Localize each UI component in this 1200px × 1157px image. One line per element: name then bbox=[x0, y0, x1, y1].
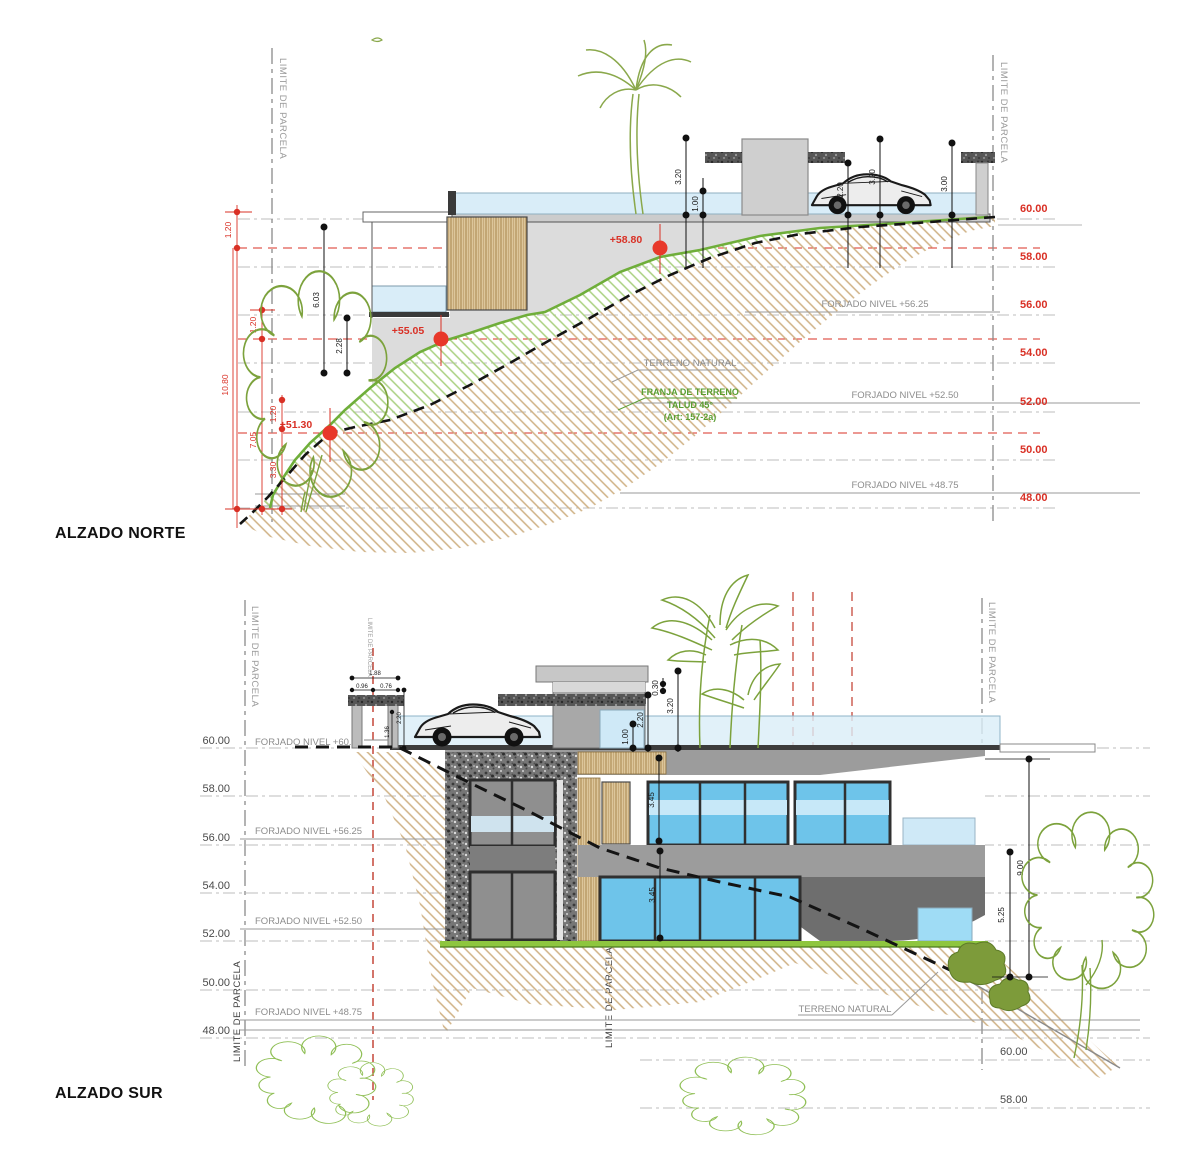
north-left-parcel-label: LIMITE DE PARCELA bbox=[277, 58, 288, 159]
south-window-upper-right-band bbox=[796, 800, 889, 815]
north-gate-post bbox=[976, 163, 988, 215]
dim-320b: 3.20 bbox=[868, 169, 877, 185]
south-terrain-hatch-main bbox=[445, 947, 1118, 1078]
south-wood-band bbox=[578, 752, 666, 774]
north-deck-slab bbox=[452, 214, 990, 222]
gate-dim-096: 0.96 bbox=[356, 684, 368, 690]
south-level-50: 50.00 bbox=[202, 977, 230, 989]
north-glass-end-cap bbox=[448, 191, 456, 215]
south-terreno-natural-label: TERRENO NATURAL bbox=[799, 1004, 892, 1015]
gate-dim-188: 1.88 bbox=[369, 671, 381, 677]
south-bushes-outline bbox=[256, 1036, 805, 1135]
dim-100s: 1.00 bbox=[621, 729, 630, 745]
north-forjado-5250-label: FORJADO NIVEL +52.50 bbox=[851, 390, 958, 401]
gate-dim-220: 2.20 bbox=[397, 712, 403, 724]
north-forjado-4875-label: FORJADO NIVEL +48.75 bbox=[851, 480, 958, 491]
south-gate: 1.88 0.96 0.76 2.20 1.36 bbox=[348, 671, 406, 750]
south-level-54: 54.00 bbox=[202, 880, 230, 892]
north-level-56: 56.00 bbox=[1020, 299, 1048, 311]
south-spandrel bbox=[470, 846, 555, 872]
north-lower-glass bbox=[372, 286, 446, 312]
dim-1080: 10.80 bbox=[220, 374, 230, 396]
dim-220s: 2.20 bbox=[636, 712, 645, 728]
north-title: ALZADO NORTE bbox=[55, 525, 186, 542]
south-gate-post-left bbox=[352, 705, 362, 748]
south-window-upper-band bbox=[649, 800, 787, 815]
north-level-48: 48.00 bbox=[1020, 492, 1048, 504]
gate-dim-076: 0.76 bbox=[380, 684, 392, 690]
north-elevation: LIMITE DE PARCELA LIMITE DE PARCELA FORJ… bbox=[55, 38, 1140, 553]
south-forjado-4875-label: FORJADO NIVEL +48.75 bbox=[255, 1007, 362, 1018]
marker-5505-label: +55.05 bbox=[392, 325, 425, 337]
dim-345b: 3.45 bbox=[648, 887, 657, 903]
south-glass-balustrade-upper bbox=[903, 818, 975, 845]
south-right-level-58: 58.00 bbox=[1000, 1094, 1028, 1106]
north-level-58: 58.00 bbox=[1020, 251, 1048, 263]
south-elevation: LIMITE DE PARCELA LIMITE DE PARCELA LIMI… bbox=[55, 575, 1154, 1135]
north-gate-cap bbox=[961, 152, 995, 163]
dim-120c: 1.20 bbox=[268, 405, 278, 422]
south-level-60: 60.00 bbox=[202, 735, 230, 747]
north-roof-bulkhead bbox=[742, 139, 808, 215]
north-small-leaf bbox=[372, 38, 382, 42]
south-left-parcel-label-bottom: LIMITE DE PARCELA bbox=[232, 961, 243, 1062]
north-pergola-band-right bbox=[808, 152, 845, 163]
south-right-parcel-label: LIMITE DE PARCELA bbox=[986, 602, 997, 703]
south-level-52: 52.00 bbox=[202, 928, 230, 940]
south-level-56: 56.00 bbox=[202, 832, 230, 844]
north-level-50: 50.00 bbox=[1020, 444, 1048, 456]
terreno-natural-label: TERRENO NATURAL bbox=[644, 358, 737, 369]
gate-dim-136: 1.36 bbox=[385, 726, 391, 738]
north-level-52: 52.00 bbox=[1020, 396, 1048, 408]
north-pergola-band-left bbox=[705, 152, 742, 163]
south-pavilion-parapet bbox=[553, 682, 645, 692]
south-forjado-5250-label: FORJADO NIVEL +52.50 bbox=[255, 916, 362, 927]
north-deck-slab-left bbox=[363, 212, 455, 222]
south-level-58: 58.00 bbox=[202, 783, 230, 795]
south-mid-fascia bbox=[578, 845, 985, 877]
talud-label: TALUD 45° bbox=[667, 400, 713, 410]
north-level-54: 54.00 bbox=[1020, 347, 1048, 359]
south-title: ALZADO SUR bbox=[55, 1085, 163, 1102]
dim-100: 1.00 bbox=[691, 196, 700, 212]
south-level-48: 48.00 bbox=[202, 1025, 230, 1037]
north-forjado-5625-label: FORJADO NIVEL +56.25 bbox=[821, 299, 928, 310]
south-secondary-parcel-label: LIMITE DE PARCELA bbox=[366, 618, 372, 677]
dim-320a: 3.20 bbox=[674, 169, 683, 185]
south-glass-balustrade-lower bbox=[918, 908, 972, 941]
dim-300: 3.00 bbox=[940, 176, 949, 192]
north-level-60: 60.00 bbox=[1020, 203, 1048, 215]
north-right-parcel-label: LIMITE DE PARCELA bbox=[998, 62, 1009, 163]
south-wall-strip bbox=[557, 780, 563, 940]
south-forjado-5625-label: FORJADO NIVEL +56.25 bbox=[255, 826, 362, 837]
north-lower-sill bbox=[369, 312, 449, 317]
south-gate-lintel bbox=[348, 695, 404, 706]
south-grass-strip bbox=[440, 941, 988, 947]
north-wood-slat-panel bbox=[447, 217, 527, 310]
dim-220: 2.20 bbox=[836, 182, 845, 198]
dim-030: 0.30 bbox=[651, 680, 660, 696]
south-slab-extension bbox=[1000, 744, 1095, 752]
south-right-level-60: 60.00 bbox=[1000, 1046, 1028, 1058]
marker-5880-label: +58.80 bbox=[610, 234, 643, 246]
north-palm-tree bbox=[578, 40, 691, 214]
south-pavilion-lintel bbox=[498, 694, 646, 706]
elevation-sheet: LIMITE DE PARCELA LIMITE DE PARCELA FORJ… bbox=[0, 0, 1200, 1157]
south-left-parcel-label: LIMITE DE PARCELA bbox=[249, 606, 260, 707]
articulo-label: (Art: 157-2a) bbox=[664, 412, 717, 422]
south-wood-shutter bbox=[602, 782, 630, 844]
dim-525: 5.25 bbox=[997, 907, 1006, 923]
south-roof-edge bbox=[390, 745, 1000, 750]
drawing-svg: LIMITE DE PARCELA LIMITE DE PARCELA FORJ… bbox=[0, 0, 1200, 1157]
franja-label: FRANJA DE TERRENO bbox=[641, 387, 739, 397]
dim-603: 6.03 bbox=[312, 292, 321, 308]
south-pavilion-roof bbox=[536, 666, 648, 682]
dim-120a: 1.20 bbox=[223, 221, 233, 238]
dim-320s: 3.20 bbox=[666, 698, 675, 714]
dim-345a: 3.45 bbox=[647, 792, 656, 808]
dim-228: 2.28 bbox=[335, 338, 344, 354]
